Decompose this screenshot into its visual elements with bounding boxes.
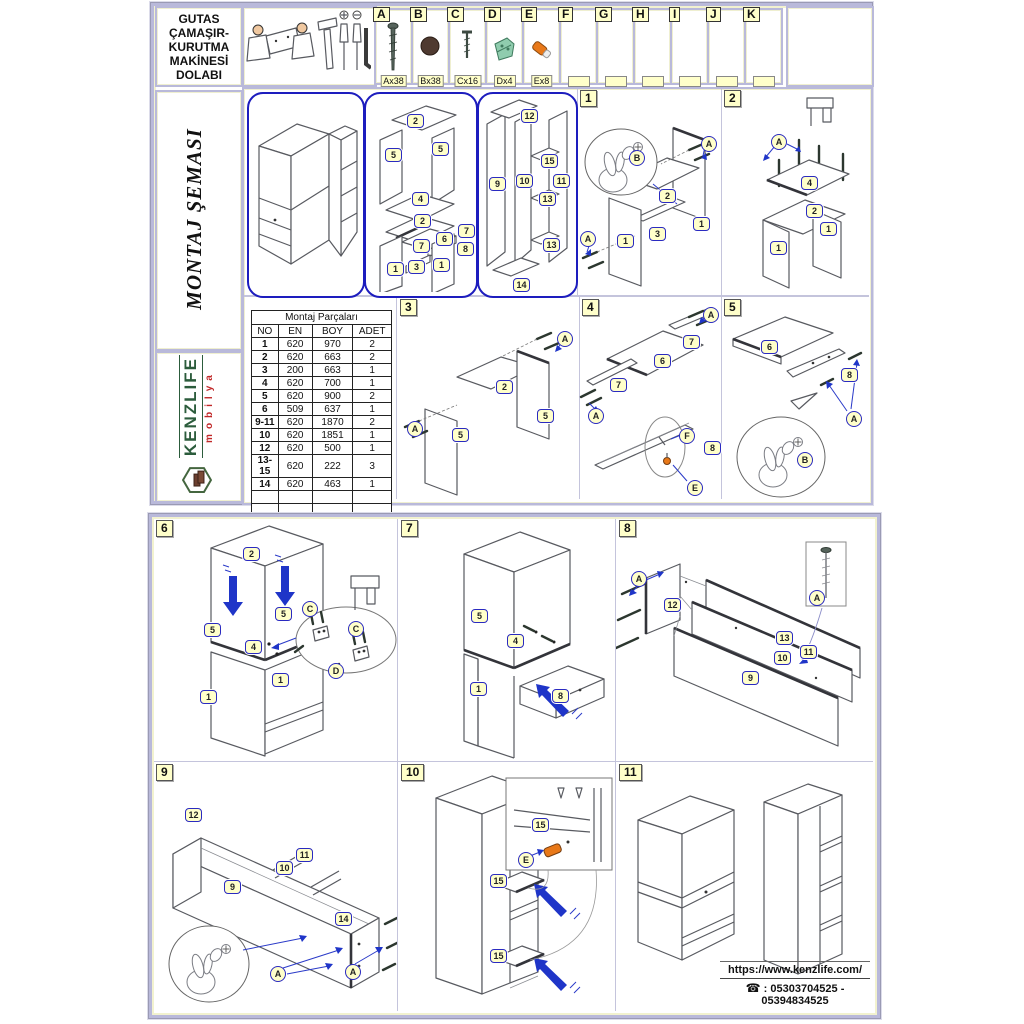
hardware-item-I: I: [670, 8, 709, 85]
hardware-legend: AAx38BBx38CCx16DDx4EEx8FGHIJK: [374, 8, 780, 81]
table-row: 56209002: [252, 390, 392, 403]
step-1-diagram: [577, 88, 721, 296]
part-label: 8: [552, 689, 569, 703]
hardware-count-label: Cx16: [454, 75, 481, 87]
callout-letter: A: [557, 331, 573, 347]
part-label: 5: [385, 148, 402, 162]
assembly-instruction-sheet: GUTAS ÇAMAŞIR- KURUTMA MAKİNESİ DOLABI: [0, 0, 1024, 1024]
step-8-diagram: [616, 518, 873, 761]
step-3: 3 A 2 5 5 A: [397, 297, 579, 499]
part-label: 2: [243, 547, 260, 561]
table-cell: 6: [252, 403, 279, 416]
overview-exploded-main: 2 5 5 4 2 6 7 7 8 1 3 1: [364, 92, 478, 298]
table-cell: 2: [353, 390, 392, 403]
part-label: 9: [224, 880, 241, 894]
title-line: DOLABI: [176, 68, 222, 82]
brand-logo: KENZLIFE mobilya: [179, 355, 215, 495]
part-label: 3: [649, 227, 666, 241]
hardware-letter: H: [632, 7, 649, 22]
table-cell: 620: [278, 442, 312, 455]
hardware-letter: G: [595, 7, 612, 22]
part-label: 2: [496, 380, 513, 394]
table-cell: [353, 491, 392, 504]
callout-letter: A: [588, 408, 604, 424]
callout-letter: A: [771, 134, 787, 150]
table-row: 32006631: [252, 364, 392, 377]
part-label: 4: [507, 634, 524, 648]
table-row: 46207001: [252, 377, 392, 390]
parts-table-cell: Montaj ParçalarıNOENBOYADET1620970226206…: [242, 297, 396, 499]
part-label: 7: [610, 378, 627, 392]
hardware-letter: K: [743, 7, 760, 22]
table-cell: 3: [353, 455, 392, 478]
table-cell: 10: [252, 429, 279, 442]
table-cell: [278, 491, 312, 504]
title-line: MAKİNESİ: [170, 54, 229, 68]
spare-box: [786, 6, 874, 87]
table-row: [252, 491, 392, 504]
brand-subname: mobilya: [204, 370, 215, 443]
part-label: 15: [532, 818, 549, 832]
step-number: 2: [724, 90, 741, 107]
hardware-letter: B: [410, 7, 427, 22]
hardware-item-H: H: [633, 8, 672, 85]
part-label: 4: [245, 640, 262, 654]
callout-letter: B: [629, 150, 645, 166]
part-label: 3: [408, 260, 425, 274]
schema-title-box: MONTAJ ŞEMASI: [155, 90, 243, 351]
callout-letter: A: [407, 421, 423, 437]
callout-letter: A: [345, 964, 361, 980]
table-cell: 663: [312, 364, 353, 377]
part-label: 5: [537, 409, 554, 423]
step-6: 6 2 5 5: [153, 518, 397, 761]
part-label: 15: [541, 154, 558, 168]
table-cell: 3: [252, 364, 279, 377]
table-title-row: Montaj Parçaları: [252, 311, 392, 325]
step-number: 6: [156, 520, 173, 537]
hardware-item-K: K: [744, 8, 783, 85]
part-label: 13: [776, 631, 793, 645]
table-cell: 2: [353, 416, 392, 429]
parts-table: Montaj ParçalarıNOENBOYADET1620970226206…: [251, 310, 392, 517]
step-number: 9: [156, 764, 173, 781]
step-10-diagram: [398, 762, 615, 1012]
callout-letter: A: [809, 590, 825, 606]
part-label: 9: [742, 671, 759, 685]
table-row: 1062018511: [252, 429, 392, 442]
part-label: 5: [275, 607, 292, 621]
part-label: 11: [800, 645, 817, 659]
callout-letter: A: [703, 307, 719, 323]
table-row: 9-1162018702: [252, 416, 392, 429]
hardware-count-label: [605, 76, 627, 87]
step-number: 11: [619, 764, 642, 781]
part-label: 6: [761, 340, 778, 354]
hardware-count-label: [568, 76, 590, 87]
part-label: 15: [490, 874, 507, 888]
hardware-item-D: DDx4: [485, 8, 524, 85]
part-label: 14: [513, 278, 530, 292]
step-11: 11 https://www.kenzlife.com/ ☎ : 0530370…: [616, 762, 873, 1012]
part-label: 12: [664, 598, 681, 612]
part-label: 1: [770, 241, 787, 255]
overview-assembled: [247, 92, 365, 298]
table-cell: 1851: [312, 429, 353, 442]
hardware-item-B: BBx38: [411, 8, 450, 85]
table-cell: 200: [278, 364, 312, 377]
table-cell: 663: [312, 351, 353, 364]
brand-logo-box: KENZLIFE mobilya: [155, 351, 243, 503]
phone-icon: ☎: [746, 981, 761, 995]
step-6-diagram: [153, 518, 397, 761]
table-cell: 620: [278, 390, 312, 403]
part-label: 1: [200, 690, 217, 704]
callout-letter: A: [580, 231, 596, 247]
table-cell: 500: [312, 442, 353, 455]
table-cell: 13-15: [252, 455, 279, 478]
part-label: 15: [490, 949, 507, 963]
part-label: 4: [801, 176, 818, 190]
part-label: 10: [774, 651, 791, 665]
callout-letter: A: [631, 571, 647, 587]
hardware-letter: E: [521, 7, 537, 22]
brand-name: KENZLIFE: [179, 355, 203, 458]
hardware-letter: D: [484, 7, 501, 22]
table-cell: 1: [353, 403, 392, 416]
table-title: Montaj Parçaları: [252, 311, 392, 325]
part-label: 1: [272, 673, 289, 687]
step-11-diagram: [616, 762, 873, 980]
part-label: 4: [412, 192, 429, 206]
table-cell: 700: [312, 377, 353, 390]
hardware-item-J: J: [707, 8, 746, 85]
table-cell: 620: [278, 377, 312, 390]
part-label: 2: [806, 204, 823, 218]
part-label: 1: [470, 682, 487, 696]
product-title: GUTAS ÇAMAŞIR- KURUTMA MAKİNESİ DOLABI: [155, 6, 243, 87]
part-label: 1: [693, 217, 710, 231]
table-cell: 1: [353, 478, 392, 491]
part-label: 1: [617, 234, 634, 248]
part-label: 13: [539, 192, 556, 206]
table-cell: 463: [312, 478, 353, 491]
step-9: 9 12 11: [153, 762, 397, 1012]
callout-letter: D: [328, 663, 344, 679]
part-label: 7: [458, 224, 475, 238]
phone-line: ☎ : 05303704525 - 05394834525: [720, 978, 870, 1009]
part-label: 5: [452, 428, 469, 442]
callout-letter: C: [302, 601, 318, 617]
hardware-letter: C: [447, 7, 464, 22]
callout-letter: E: [518, 852, 534, 868]
table-cell: 1: [353, 429, 392, 442]
callout-letter: A: [846, 411, 862, 427]
hardware-count-label: Bx38: [417, 75, 444, 87]
part-label: 7: [683, 335, 700, 349]
hardware-item-A: AAx38: [374, 8, 413, 85]
step-number: 8: [619, 520, 636, 537]
website-url: https://www.kenzlife.com/: [720, 961, 870, 978]
step-3-diagram: [397, 297, 579, 499]
hardware-count-label: Ax38: [380, 75, 407, 87]
callout-letter: F: [679, 428, 695, 444]
part-label: 6: [436, 232, 453, 246]
part-label: 10: [276, 861, 293, 875]
brand-hexagon-icon: [182, 465, 212, 495]
table-cell: 4: [252, 377, 279, 390]
part-label: 1: [387, 262, 404, 276]
table-cell: 620: [278, 416, 312, 429]
table-cell: 620: [278, 351, 312, 364]
table-cell: 14: [252, 478, 279, 491]
part-label: 9: [489, 177, 506, 191]
small-screw-icon: [450, 18, 485, 83]
exploded-tall-diagram: [479, 94, 572, 292]
callout-letter: B: [797, 452, 813, 468]
dowel-icon: [524, 18, 559, 83]
tools-box: [242, 6, 377, 87]
part-label: 12: [185, 808, 202, 822]
hardware-item-C: CCx16: [448, 8, 487, 85]
part-label: 11: [553, 174, 570, 188]
column-header: NO: [252, 325, 279, 338]
hardware-letter: F: [558, 7, 573, 22]
hardware-letter: I: [669, 7, 680, 22]
part-label: 6: [654, 354, 671, 368]
table-cell: 222: [312, 455, 353, 478]
step-5: 5 6 8 A B: [721, 297, 871, 499]
part-label: 12: [521, 109, 538, 123]
hardware-count-label: [642, 76, 664, 87]
part-label: 2: [407, 114, 424, 128]
phone-numbers: : 05303704525 - 05394834525: [761, 983, 844, 1007]
contact-footer: https://www.kenzlife.com/ ☎ : 0530370452…: [720, 961, 870, 1009]
table-cell: 970: [312, 338, 353, 351]
table-cell: 2: [353, 351, 392, 364]
table-header-row: NOENBOYADET: [252, 325, 392, 338]
hardware-item-F: F: [559, 8, 598, 85]
part-label: 1: [433, 258, 450, 272]
step-1: 1 A B 2 1 3 1 A: [577, 88, 721, 296]
callout-letter: A: [701, 136, 717, 152]
hardware-item-G: G: [596, 8, 635, 85]
column-header: EN: [278, 325, 312, 338]
bracket-icon: [487, 18, 522, 83]
hardware-letter: J: [706, 7, 721, 22]
part-label: 8: [457, 242, 474, 256]
table-cell: 5: [252, 390, 279, 403]
step-number: 4: [582, 299, 599, 316]
table-cell: 620: [278, 429, 312, 442]
table-cell: [252, 491, 279, 504]
step-4-diagram: [579, 297, 721, 499]
part-label: 10: [516, 174, 533, 188]
step-number: 10: [401, 764, 424, 781]
table-row: 13-156202223: [252, 455, 392, 478]
title-line: KURUTMA: [169, 40, 230, 54]
part-label: 2: [659, 189, 676, 203]
step-5-diagram: [721, 297, 871, 499]
hardware-count-label: Dx4: [493, 75, 515, 87]
table-row: 26206632: [252, 351, 392, 364]
part-label: 14: [335, 912, 352, 926]
cover-cap-icon: [413, 18, 448, 83]
table-cell: 2: [353, 338, 392, 351]
table-cell: 1: [353, 442, 392, 455]
column-header: BOY: [312, 325, 353, 338]
step-2: 2 A 4 2 1 1: [721, 88, 871, 296]
table-cell: 509: [278, 403, 312, 416]
step-number: 3: [400, 299, 417, 316]
table-cell: 1870: [312, 416, 353, 429]
step-number: 1: [580, 90, 597, 107]
table-cell: 12: [252, 442, 279, 455]
part-label: 5: [471, 609, 488, 623]
hardware-count-label: Ex8: [531, 75, 553, 87]
part-label: 1: [820, 222, 837, 236]
table-cell: 620: [278, 338, 312, 351]
table-cell: 2: [252, 351, 279, 364]
step-4: 4 A 7 6 7 A F 8 E: [579, 297, 721, 499]
hardware-item-E: EEx8: [522, 8, 561, 85]
step-number: 7: [401, 520, 418, 537]
table-cell: 620: [278, 455, 312, 478]
table-row: 16209702: [252, 338, 392, 351]
part-label: 8: [704, 441, 721, 455]
step-number: 5: [724, 299, 741, 316]
hardware-count-label: [716, 76, 738, 87]
callout-letter: C: [348, 621, 364, 637]
callout-letter: E: [687, 480, 703, 496]
step-2-diagram: [721, 88, 871, 296]
table-cell: 620: [278, 478, 312, 491]
part-label: 2: [414, 214, 431, 228]
step-8: 8 A 12 13 10 11 9 A: [616, 518, 873, 761]
table-cell: 1: [353, 377, 392, 390]
part-label: 7: [413, 239, 430, 253]
table-cell: 9-11: [252, 416, 279, 429]
hardware-count-label: [679, 76, 701, 87]
table-row: 65096371: [252, 403, 392, 416]
table-cell: 1: [252, 338, 279, 351]
table-cell: [312, 491, 353, 504]
callout-letter: A: [270, 966, 286, 982]
part-label: 11: [296, 848, 313, 862]
part-label: 5: [432, 142, 449, 156]
assembled-cabinet-diagram: [249, 94, 359, 292]
step-10: 10 15 E 15 15: [398, 762, 615, 1012]
table-cell: 900: [312, 390, 353, 403]
title-line: ÇAMAŞIR-: [169, 26, 229, 40]
part-label: 13: [543, 238, 560, 252]
hardware-count-label: [753, 76, 775, 87]
tools-illustration: [244, 8, 371, 81]
table-cell: 1: [353, 364, 392, 377]
title-line: GUTAS: [178, 12, 219, 26]
table-row: 146204631: [252, 478, 392, 491]
overview-exploded-tall: 12 15 9 10 11 13 13 14: [477, 92, 578, 298]
table-row: 126205001: [252, 442, 392, 455]
part-label: 5: [204, 623, 221, 637]
column-header: ADET: [353, 325, 392, 338]
step-7: 7 5 4 1 8: [398, 518, 615, 761]
confirmat-screw-icon: [376, 18, 411, 83]
schema-title: MONTAJ ŞEMASI: [182, 94, 212, 344]
part-label: 8: [841, 368, 858, 382]
hardware-letter: A: [373, 7, 390, 22]
table-cell: 637: [312, 403, 353, 416]
